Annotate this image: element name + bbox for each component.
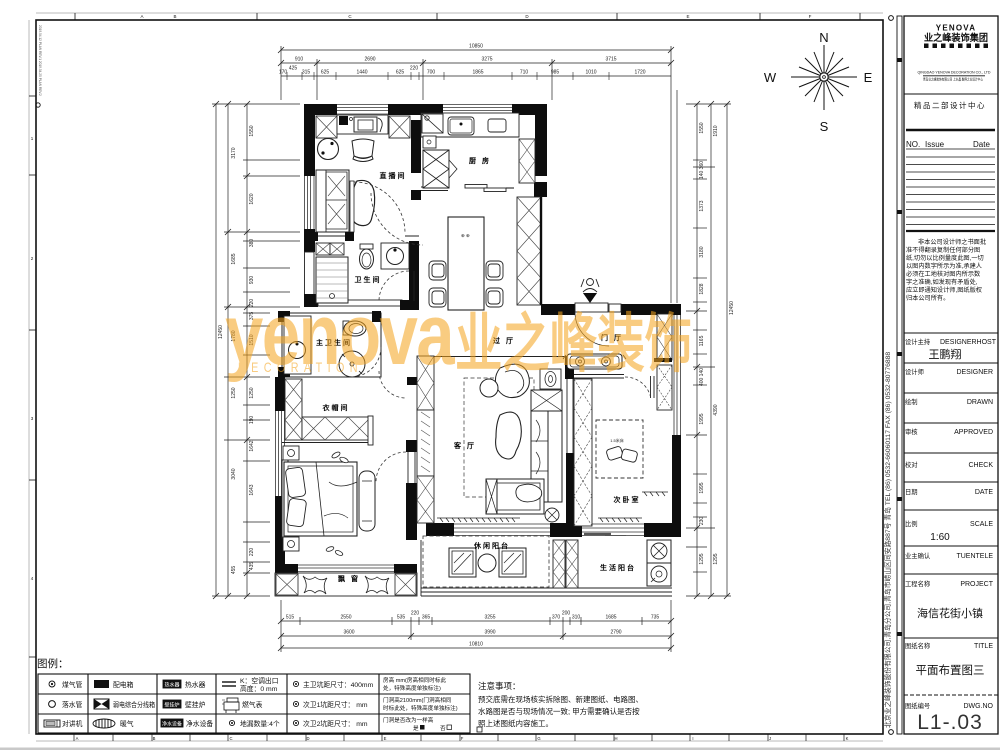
svg-text:3990: 3990 (484, 630, 495, 636)
svg-text:处，特殊高度单独标注): 处，特殊高度单独标注) (383, 684, 441, 692)
svg-text:归本公司所有。: 归本公司所有。 (906, 294, 949, 302)
svg-text:10810: 10810 (469, 642, 483, 648)
svg-text:图例：: 图例： (37, 657, 69, 670)
svg-text:图纸编号: 图纸编号 (905, 701, 930, 710)
svg-text:B: B (173, 14, 176, 19)
svg-text:A: A (76, 736, 79, 741)
svg-text:王鹏翔: 王鹏翔 (929, 347, 962, 361)
svg-text:非本公司设计师之书面批: 非本公司设计师之书面批 (918, 238, 986, 246)
svg-text:必须在工地核对图内所示数: 必须在工地核对图内所示数 (906, 270, 981, 278)
svg-text:1685: 1685 (605, 615, 616, 621)
svg-text:字之准确,如发现有矛盾处,: 字之准确,如发现有矛盾处, (906, 278, 978, 286)
svg-text:E: E (384, 736, 387, 741)
svg-text:时标此处，特殊高度单独标注): 时标此处，特殊高度单独标注) (383, 704, 458, 712)
svg-text:业主确认: 业主确认 (905, 551, 931, 560)
svg-text:2690: 2690 (364, 57, 375, 63)
svg-text:910: 910 (295, 57, 304, 63)
svg-text:平面布置图三: 平面布置图三 (916, 664, 985, 677)
svg-text:业之峰装饰: 业之峰装饰 (455, 308, 692, 380)
svg-text:2019.04.12 PLAN REV.1 2019.04: 2019.04.12 PLAN REV.1 2019.04.20 PLAN RE… (38, 25, 42, 96)
svg-text:310: 310 (572, 615, 581, 621)
svg-text:审核: 审核 (905, 427, 918, 436)
svg-text:I: I (692, 736, 693, 741)
svg-text:海信花街小镇: 海信花街小镇 (917, 606, 983, 620)
svg-text:纸,切勿以比例量度此图,一切: 纸,切勿以比例量度此图,一切 (906, 254, 984, 262)
svg-text:照上述图纸内容施工。: 照上述图纸内容施工。 (478, 718, 553, 728)
svg-text:4390: 4390 (713, 404, 719, 415)
svg-text:日期: 日期 (905, 488, 918, 496)
svg-text:以图内数字所示为准,承建人: 以图内数字所示为准,承建人 (906, 262, 982, 270)
svg-text:设计主持: 设计主持 (905, 337, 931, 346)
svg-text:注意事项：: 注意事项： (478, 681, 521, 691)
svg-text:Issue: Issue (925, 140, 945, 149)
svg-text:DESIGNER: DESIGNER (956, 369, 993, 376)
svg-text:3255: 3255 (484, 615, 495, 621)
svg-text:预交底需在现场核实拆除图、新建图纸、电路图、: 预交底需在现场核实拆除图、新建图纸、电路图、 (478, 694, 643, 704)
svg-text:直播间: 直播间 (380, 171, 407, 180)
svg-text:DESIGNERHOST: DESIGNERHOST (940, 339, 997, 346)
svg-text:140 360: 140 360 (699, 161, 705, 179)
svg-text:弱电综合分线箱: 弱电综合分线箱 (113, 700, 155, 709)
svg-text:卫生间: 卫生间 (355, 275, 382, 284)
svg-text:壁挂炉: 壁挂炉 (165, 702, 180, 709)
svg-text:N: N (819, 30, 828, 45)
svg-text:绘制: 绘制 (905, 397, 918, 406)
svg-text:C: C (229, 736, 232, 741)
svg-text:厨 房: 厨 房 (469, 156, 491, 165)
svg-text:400 140: 400 140 (699, 368, 705, 386)
svg-text:水路图是否与现场情况一致; 甲方需要确认是否按: 水路图是否与现场情况一致; 甲方需要确认是否按 (478, 706, 640, 716)
svg-text:1.5米床: 1.5米床 (610, 437, 624, 443)
svg-text:DECORATION: DECORATION (238, 359, 363, 375)
svg-text:K：空调出口: K：空调出口 (240, 676, 279, 685)
svg-text:DRAWN: DRAWN (967, 399, 993, 406)
svg-text:落水管: 落水管 (62, 700, 83, 709)
svg-text:W: W (764, 70, 777, 85)
svg-text:准不得翻录复制任何部分图: 准不得翻录复制任何部分图 (906, 246, 980, 254)
svg-text:NO.: NO. (906, 140, 920, 149)
svg-text:精品二部设计中心: 精品二部设计中心 (914, 100, 986, 110)
svg-text:1010: 1010 (585, 70, 596, 76)
svg-text:是: 是 (413, 725, 419, 732)
svg-text:F: F (461, 736, 464, 741)
svg-text:客 厅: 客 厅 (453, 441, 476, 450)
svg-text:1550: 1550 (699, 122, 705, 133)
svg-text:CHECK: CHECK (968, 462, 993, 469)
svg-text:220: 220 (411, 611, 420, 617)
svg-text:1550: 1550 (249, 125, 255, 136)
svg-text:D: D (306, 736, 309, 741)
svg-text:门洞是否改为一样高: 门洞是否改为一样高 (383, 716, 434, 724)
svg-text:365: 365 (422, 615, 431, 621)
svg-text:B: B (153, 736, 156, 741)
svg-text:3275: 3275 (481, 57, 492, 63)
svg-text:G: G (537, 736, 540, 741)
svg-text:PROJECT: PROJECT (960, 581, 993, 588)
svg-text:200: 200 (562, 611, 571, 617)
svg-text:12450: 12450 (218, 325, 224, 339)
svg-text:⊕ ⊕: ⊕ ⊕ (461, 233, 470, 238)
svg-text:435: 435 (249, 562, 255, 571)
svg-text:次卫1坑距尺寸： mm: 次卫1坑距尺寸： mm (303, 700, 368, 709)
svg-text:455: 455 (231, 566, 237, 575)
svg-text:1720: 1720 (634, 70, 645, 76)
svg-text:净水设备: 净水设备 (162, 721, 182, 728)
svg-text:3180: 3180 (699, 246, 705, 257)
svg-text:220: 220 (410, 66, 419, 72)
svg-text:A: A (140, 14, 143, 19)
svg-text:热水器: 热水器 (185, 680, 206, 689)
svg-text:SCALE: SCALE (970, 521, 993, 528)
svg-text:衣帽间: 衣帽间 (323, 403, 350, 412)
svg-text:220: 220 (249, 548, 255, 557)
svg-text:380: 380 (249, 239, 255, 248)
svg-text:生活阳台: 生活阳台 (600, 563, 636, 572)
svg-text:门洞高2100mm(门洞高相同: 门洞高2100mm(门洞高相同 (383, 696, 452, 704)
svg-text:710: 710 (520, 70, 529, 76)
svg-text:10850: 10850 (469, 44, 483, 50)
svg-text:E: E (686, 14, 689, 19)
svg-text:230: 230 (699, 517, 705, 526)
svg-text:Date: Date (973, 140, 990, 149)
svg-text:E: E (864, 70, 873, 85)
svg-text:房高 mm(房高相同时标此: 房高 mm(房高相同时标此 (383, 676, 446, 684)
svg-text:3715: 3715 (605, 57, 616, 63)
svg-text:主卫坑距尺寸：400mm: 主卫坑距尺寸：400mm (303, 680, 374, 689)
svg-text:1295: 1295 (713, 553, 719, 564)
svg-text:煤气管: 煤气管 (62, 680, 83, 689)
svg-text:应立即通知设计师,图纸版权: 应立即通知设计师,图纸版权 (906, 286, 982, 294)
svg-text:625: 625 (321, 70, 330, 76)
svg-text:图纸名称: 图纸名称 (905, 641, 931, 650)
svg-text:YENOVA: YENOVA (936, 24, 976, 33)
svg-text:1165: 1165 (699, 335, 705, 346)
svg-text:工程名称: 工程名称 (905, 579, 931, 588)
svg-text:飘 窗: 飘 窗 (338, 574, 360, 583)
svg-text:次卫2坑距尺寸： mm: 次卫2坑距尺寸： mm (303, 719, 368, 728)
svg-text:535: 535 (397, 615, 406, 621)
svg-text:1995: 1995 (699, 413, 705, 424)
svg-text:3040: 3040 (231, 468, 237, 479)
svg-text:TUENTELE: TUENTELE (956, 553, 993, 560)
svg-text:休闲阳台: 休闲阳台 (473, 541, 510, 550)
svg-text:370: 370 (552, 615, 561, 621)
svg-text:K: K (846, 736, 849, 741)
svg-text:1828: 1828 (699, 283, 705, 294)
svg-text:热水器: 热水器 (165, 682, 180, 689)
svg-text:1250: 1250 (249, 387, 255, 398)
svg-text:1643: 1643 (249, 484, 255, 495)
svg-text:次卧室: 次卧室 (614, 495, 641, 504)
svg-text:1250: 1250 (231, 387, 237, 398)
svg-text:12450: 12450 (729, 301, 735, 315)
svg-text:1440: 1440 (356, 70, 367, 76)
svg-text:DWG.NO: DWG.NO (963, 703, 993, 710)
svg-text:F: F (809, 14, 812, 19)
svg-text:315: 315 (302, 70, 311, 76)
svg-text:配电箱: 配电箱 (113, 680, 134, 689)
svg-text:1995: 1995 (699, 482, 705, 493)
svg-text:170: 170 (279, 70, 288, 76)
svg-text:1642: 1642 (249, 440, 255, 451)
svg-text:1910: 1910 (713, 125, 719, 136)
svg-text:QINGDAO YENOVA DECORATION CO.,: QINGDAO YENOVA DECORATION CO., LTD (917, 71, 990, 75)
svg-text:比例: 比例 (905, 519, 918, 528)
svg-text:业之峰装饰集团: 业之峰装饰集团 (924, 32, 988, 44)
svg-text:壁挂炉: 壁挂炉 (185, 700, 206, 709)
svg-text:515: 515 (286, 615, 295, 621)
svg-text:2550: 2550 (340, 615, 351, 621)
svg-text:1295: 1295 (699, 553, 705, 564)
svg-text:1:60: 1:60 (930, 532, 950, 543)
svg-text:L1-.03: L1-.03 (917, 711, 983, 734)
svg-text:校对: 校对 (905, 460, 918, 469)
svg-text:青岛业之峰装饰有限公司 上水晶 融界之业设计中心: 青岛业之峰装饰有限公司 上水晶 融界之业设计中心 (923, 77, 983, 82)
svg-text:190: 190 (249, 416, 255, 425)
svg-text:H: H (614, 736, 617, 741)
svg-text:否: 否 (440, 725, 446, 732)
svg-text:1685: 1685 (231, 253, 237, 264)
svg-text:J: J (769, 736, 771, 741)
svg-text:净水设备: 净水设备 (186, 719, 213, 728)
svg-text:DATE: DATE (975, 489, 993, 496)
svg-text:TITLE: TITLE (974, 643, 993, 650)
svg-text:APPROVED: APPROVED (954, 429, 993, 436)
svg-text:燃气表: 燃气表 (242, 700, 263, 709)
svg-text:625: 625 (396, 70, 405, 76)
svg-text:700: 700 (427, 70, 436, 76)
svg-text:高度：0 mm: 高度：0 mm (240, 684, 278, 693)
svg-text:930: 930 (249, 276, 255, 285)
svg-text:1620: 1620 (249, 193, 255, 204)
svg-text:425: 425 (289, 66, 298, 72)
svg-text:设计师: 设计师 (905, 367, 924, 376)
svg-text:985: 985 (551, 70, 560, 76)
svg-text:S: S (820, 119, 829, 134)
svg-text:暖气: 暖气 (120, 719, 134, 728)
svg-text:1865: 1865 (472, 70, 483, 76)
svg-text:北京业之峰装饰股份有限公司,青岛分公司,青岛市崂山区同安路8: 北京业之峰装饰股份有限公司,青岛分公司,青岛市崂山区同安路887号 青岛 TEL… (883, 352, 892, 728)
svg-text:对讲机: 对讲机 (62, 719, 83, 728)
svg-text:2790: 2790 (610, 630, 621, 636)
svg-text:3170: 3170 (231, 147, 237, 158)
svg-text:地漏数量:4个: 地漏数量:4个 (240, 719, 280, 728)
svg-text:735: 735 (651, 615, 660, 621)
svg-text:1373: 1373 (699, 200, 705, 211)
svg-text:3600: 3600 (343, 630, 354, 636)
